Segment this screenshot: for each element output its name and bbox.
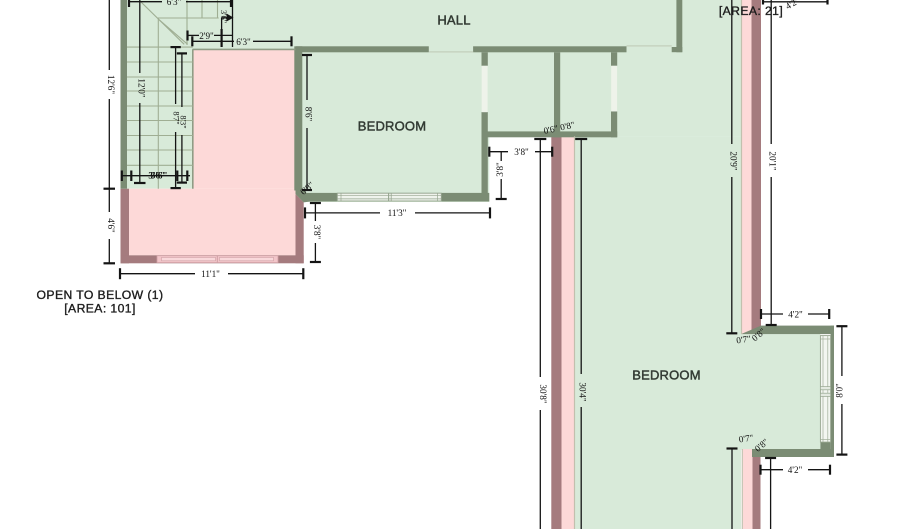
svg-text:OPEN TO BELOW (1): OPEN TO BELOW (1) [37, 288, 164, 302]
svg-text:11'1": 11'1" [201, 269, 220, 279]
svg-text:30'8": 30'8" [538, 384, 548, 403]
svg-text:[AREA: 101]: [AREA: 101] [64, 301, 135, 315]
svg-text:BEDROOM: BEDROOM [358, 119, 427, 134]
svg-text:8'0": 8'0" [834, 383, 844, 398]
svg-text:0'7": 0'7" [738, 433, 754, 445]
svg-text:3'6": 3'6" [151, 170, 168, 180]
svg-text:4'2": 4'2" [788, 309, 803, 319]
svg-text:30'4": 30'4" [578, 382, 588, 401]
svg-text:BEDROOM: BEDROOM [632, 367, 701, 382]
svg-text:3'8": 3'8" [312, 225, 322, 240]
svg-text:20'1": 20'1" [768, 151, 778, 170]
svg-text:20'9": 20'9" [728, 151, 738, 170]
svg-text:6'3": 6'3" [167, 0, 182, 7]
svg-text:12'0": 12'0" [136, 78, 146, 97]
svg-text:4'6": 4'6" [106, 218, 116, 233]
svg-text:8'3": 8'3" [178, 115, 187, 128]
svg-text:2'9": 2'9" [199, 31, 214, 41]
svg-text:3'6": 3'6" [219, 10, 228, 23]
svg-text:8'6": 8'6" [304, 107, 314, 122]
svg-text:3'8": 3'8" [495, 162, 505, 177]
svg-text:[AREA: 21]: [AREA: 21] [719, 4, 783, 18]
svg-text:6'3": 6'3" [236, 37, 251, 47]
svg-text:HALL: HALL [437, 13, 470, 28]
svg-text:4'2": 4'2" [788, 465, 803, 475]
svg-text:12'6": 12'6" [106, 75, 116, 94]
svg-text:11'3": 11'3" [388, 208, 407, 218]
svg-text:3'8": 3'8" [514, 147, 529, 157]
